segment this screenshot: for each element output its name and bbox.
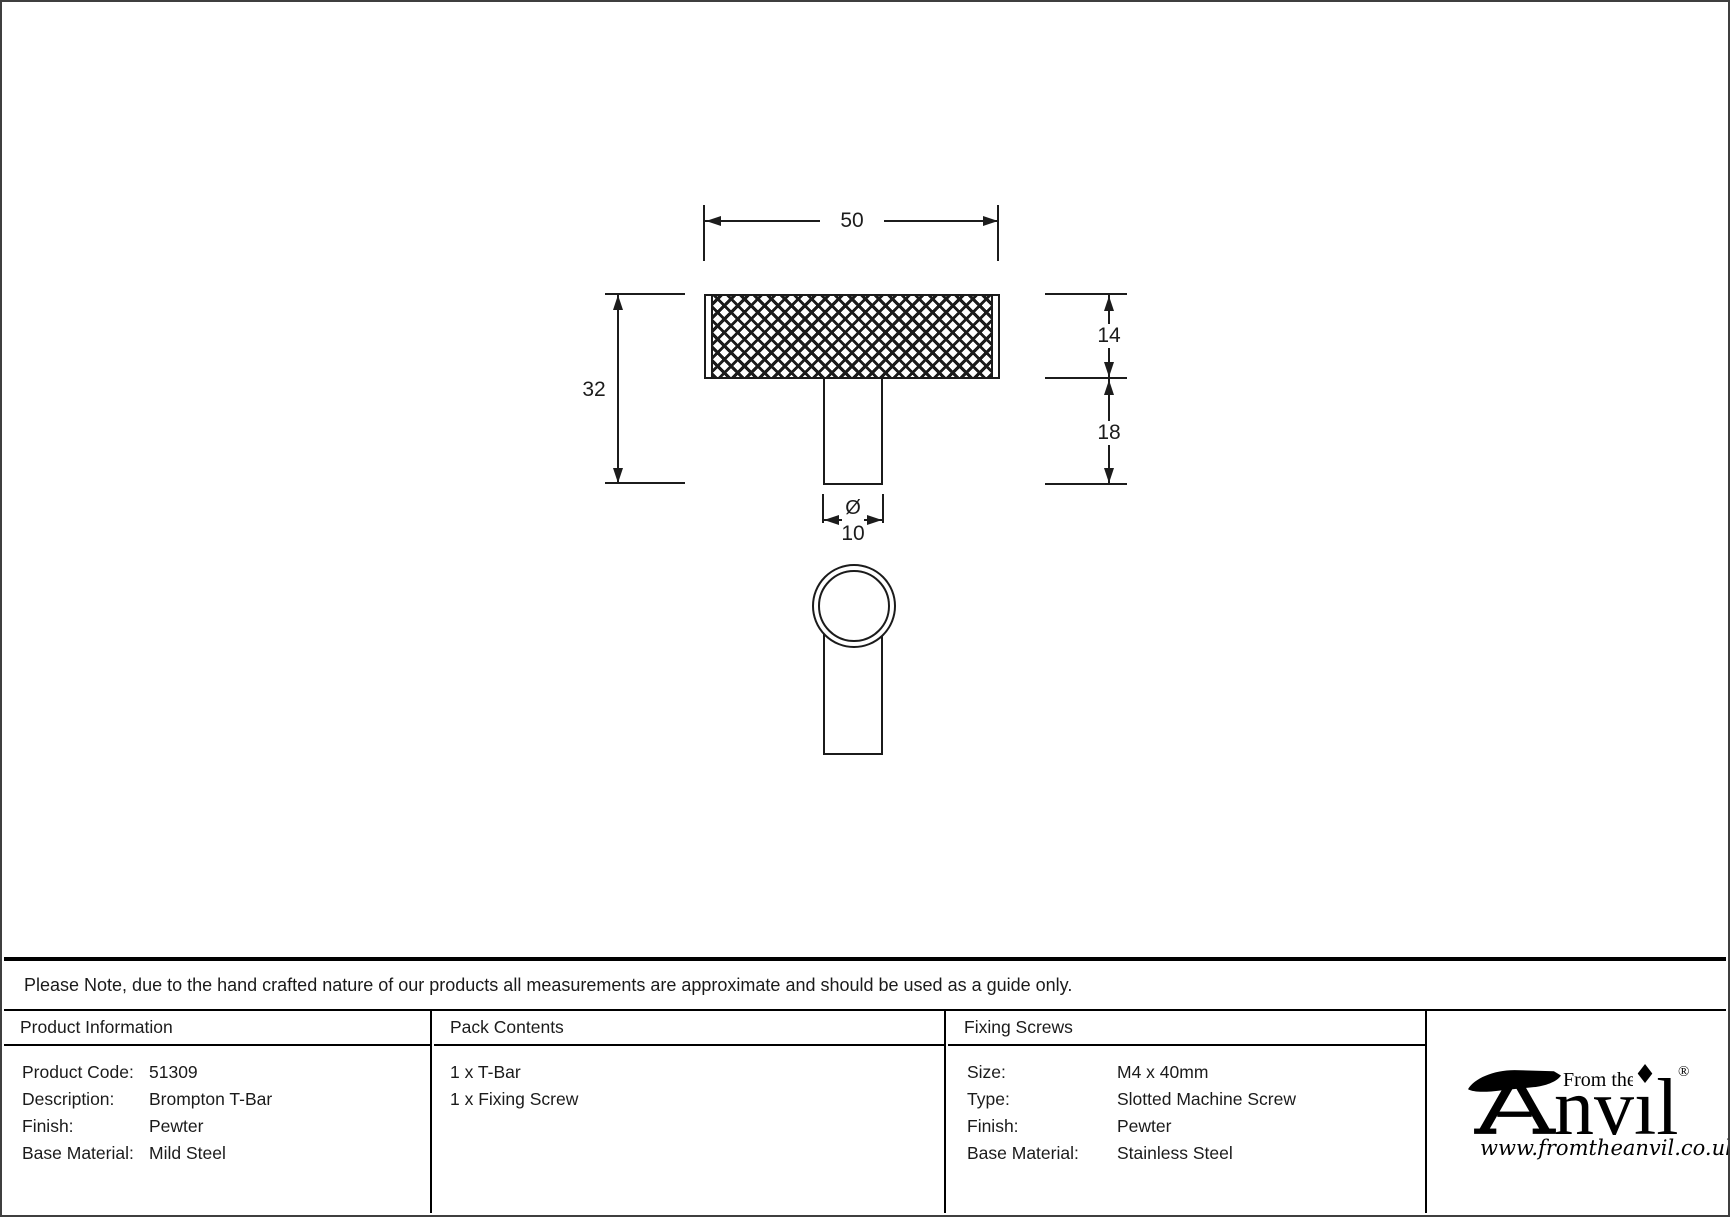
table-row: Base Material: Mild Steel xyxy=(4,1140,430,1167)
dim10-extension-right xyxy=(882,494,884,523)
dim50-arrow-right xyxy=(983,216,998,226)
row-value: Mild Steel xyxy=(149,1140,226,1167)
dim14-arrow-down xyxy=(1104,362,1114,377)
product-information-header: Product Information xyxy=(4,1011,430,1046)
diamond-icon: ♦ xyxy=(1633,1060,1657,1090)
pack-contents-header-text: Pack Contents xyxy=(450,1017,564,1038)
dim-diameter-symbol: Ø xyxy=(840,496,866,520)
dim-right-extension-bottom xyxy=(1045,483,1127,485)
anvil-icon xyxy=(1467,1068,1563,1136)
list-item: 1 x Fixing Screw xyxy=(450,1086,944,1113)
table-row: Type: Slotted Machine Screw xyxy=(948,1086,1425,1113)
measurement-note: Please Note, due to the hand crafted nat… xyxy=(4,957,1726,1011)
list-item: 1 x T-Bar xyxy=(450,1059,944,1086)
brand-logo-cell: nvil From the ♦ ® www.fromtheanvil.co.uk xyxy=(1429,1011,1726,1213)
registered-trademark-symbol: ® xyxy=(1678,1064,1689,1081)
fixing-screws-header-text: Fixing Screws xyxy=(964,1017,1073,1038)
tbar-stem-end-view xyxy=(823,632,883,755)
tbar-head-end-view-inner-circle xyxy=(818,570,890,642)
pack-contents-body: 1 x T-Bar 1 x Fixing Screw xyxy=(434,1046,944,1113)
row-value: 51309 xyxy=(149,1059,198,1086)
row-value: Pewter xyxy=(1117,1113,1171,1140)
fixing-screws-column: Fixing Screws Size: M4 x 40mm Type: Slot… xyxy=(948,1011,1427,1213)
datasheet-page: 50 32 14 18 Ø 10 xyxy=(0,0,1730,1217)
dim18-arrow-up xyxy=(1104,380,1114,395)
tbar-stem-front-view xyxy=(823,379,883,485)
dim14-arrow-up xyxy=(1104,296,1114,311)
fixing-screws-header: Fixing Screws xyxy=(948,1011,1425,1046)
row-label: Size: xyxy=(967,1059,1117,1086)
table-row: Size: M4 x 40mm xyxy=(948,1059,1425,1086)
technical-drawing: 50 32 14 18 Ø 10 xyxy=(2,2,1728,955)
dim32-arrow-up xyxy=(613,295,623,310)
brand-prefix: From the xyxy=(1563,1069,1636,1092)
tbar-head-front-view xyxy=(704,294,1000,379)
knurl-pattern xyxy=(711,296,993,377)
table-row: Finish: Pewter xyxy=(4,1113,430,1140)
row-value: Stainless Steel xyxy=(1117,1140,1233,1167)
dim32-line xyxy=(617,294,619,483)
table-row: Base Material: Stainless Steel xyxy=(948,1140,1425,1167)
measurement-note-text: Please Note, due to the hand crafted nat… xyxy=(24,975,1072,996)
product-information-body: Product Code: 51309 Description: Brompto… xyxy=(4,1046,430,1167)
pack-contents-column: Pack Contents 1 x T-Bar 1 x Fixing Screw xyxy=(434,1011,946,1213)
dim-right-extension-middle xyxy=(1045,377,1127,379)
dim-width-label: 50 xyxy=(820,209,884,233)
pack-contents-header: Pack Contents xyxy=(434,1011,944,1046)
table-row: Description: Brompton T-Bar xyxy=(4,1086,430,1113)
dim-head-height-label: 14 xyxy=(1089,324,1129,348)
row-label: Finish: xyxy=(967,1113,1117,1140)
table-row: Product Code: 51309 xyxy=(4,1059,430,1086)
row-label: Product Code: xyxy=(22,1059,149,1086)
dim-diameter-label: 10 xyxy=(837,522,869,546)
row-value: Slotted Machine Screw xyxy=(1117,1086,1296,1113)
row-label: Base Material: xyxy=(22,1140,149,1167)
dim50-arrow-left xyxy=(706,216,721,226)
table-row: Finish: Pewter xyxy=(948,1113,1425,1140)
fixing-screws-body: Size: M4 x 40mm Type: Slotted Machine Sc… xyxy=(948,1046,1425,1167)
dim50-extension-right xyxy=(997,205,999,261)
row-label: Description: xyxy=(22,1086,149,1113)
brand-website: www.fromtheanvil.co.uk xyxy=(1480,1136,1690,1160)
dim50-extension-left xyxy=(703,205,705,261)
row-label: Finish: xyxy=(22,1113,149,1140)
dim-overall-height-label: 32 xyxy=(574,378,614,402)
row-value: M4 x 40mm xyxy=(1117,1059,1208,1086)
row-value: Pewter xyxy=(149,1113,203,1140)
row-value: Brompton T-Bar xyxy=(149,1086,272,1113)
dim-right-extension-top xyxy=(1045,293,1127,295)
dim32-arrow-down xyxy=(613,468,623,483)
product-information-header-text: Product Information xyxy=(20,1017,173,1038)
product-information-column: Product Information Product Code: 51309 … xyxy=(4,1011,432,1213)
dim18-arrow-down xyxy=(1104,468,1114,483)
row-label: Type: xyxy=(967,1086,1117,1113)
dim10-arrow-right xyxy=(867,515,882,525)
dim-stem-height-label: 18 xyxy=(1089,421,1129,445)
row-label: Base Material: xyxy=(967,1140,1117,1167)
